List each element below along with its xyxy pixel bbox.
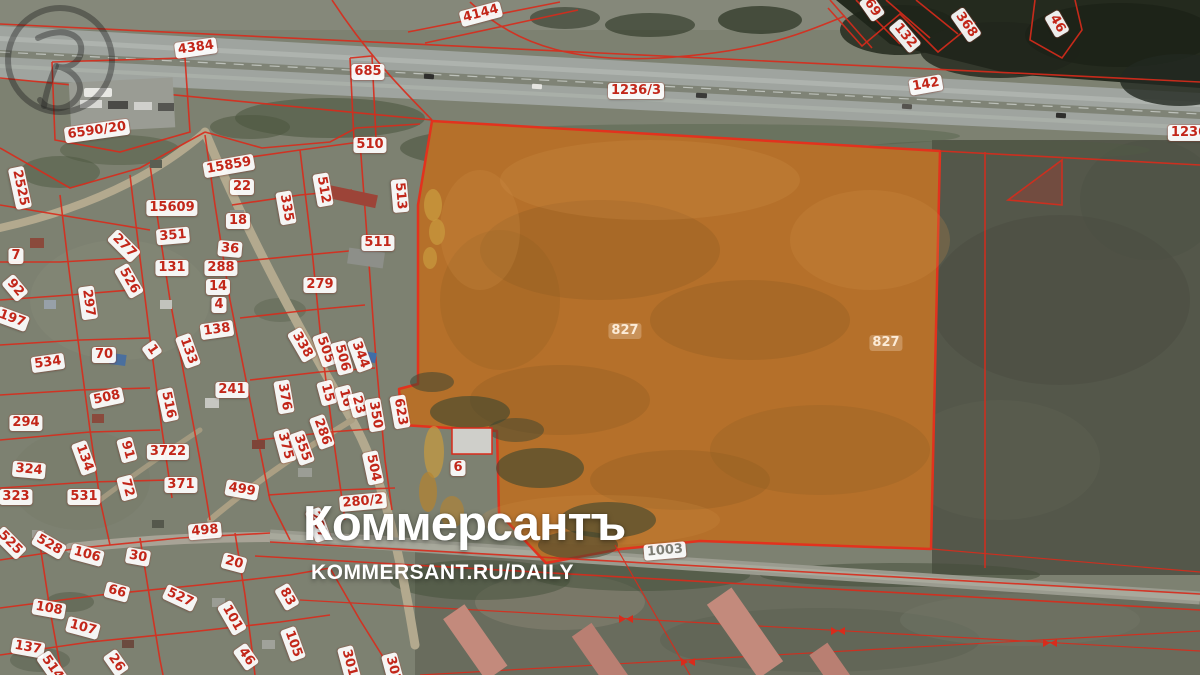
satellite-map: 438468541441236/3142691323684612366590/2… xyxy=(0,0,1200,675)
map-decor-svg xyxy=(0,0,1200,675)
kommersant-logo-watermark xyxy=(0,0,120,120)
kommersant-site-url: KOMMERSANT.RU/DAILY xyxy=(311,561,574,585)
kommersant-wordmark: Коммерсантъ xyxy=(303,496,625,552)
